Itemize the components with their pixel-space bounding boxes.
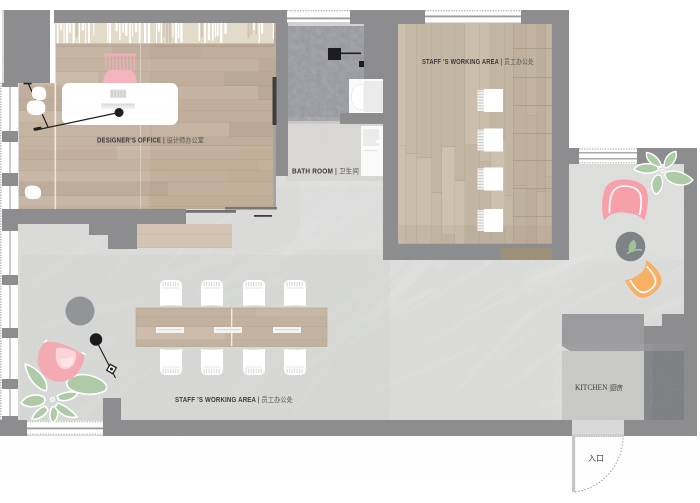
svg-text:KITCHEN |厨房: KITCHEN |厨房: [575, 382, 623, 392]
svg-text:DESIGNER’S OFFICE | 设计师办公室: DESIGNER’S OFFICE | 设计师办公室: [97, 136, 204, 145]
svg-text:入口: 入口: [588, 454, 604, 463]
svg-text:STAFF ’S WORKING AREA | 员工办公处: STAFF ’S WORKING AREA | 员工办公处: [175, 395, 293, 404]
svg-text:BATH ROOM | 卫生间: BATH ROOM | 卫生间: [292, 167, 359, 176]
svg-text:STAFF ’S WORKING AREA | 员工办公处: STAFF ’S WORKING AREA | 员工办公处: [422, 57, 534, 66]
